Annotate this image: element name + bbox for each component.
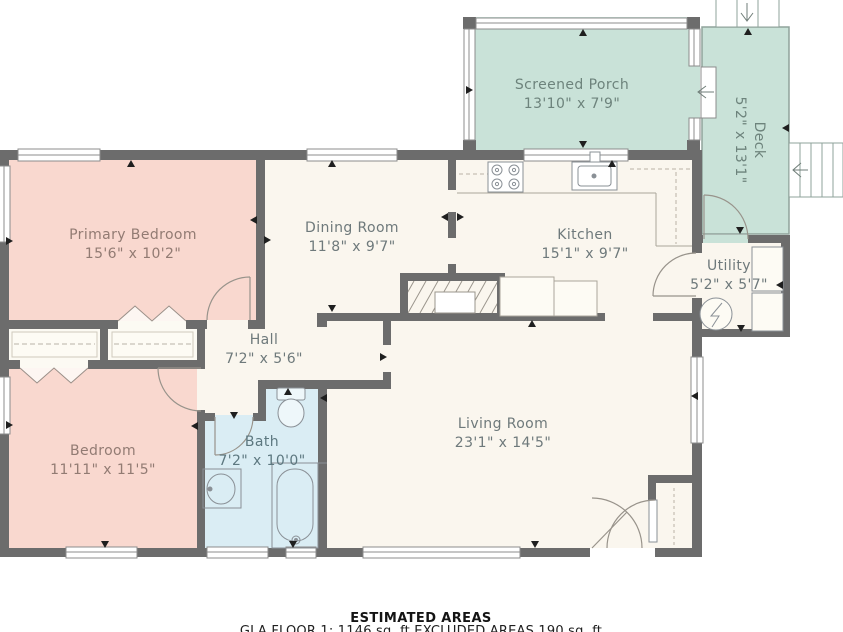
- screen-panel: [689, 118, 700, 140]
- window: [66, 547, 137, 558]
- screen-panel: [464, 29, 475, 140]
- deck-stairs-top: [716, 0, 779, 27]
- window: [207, 547, 268, 558]
- entry-closet-door: [649, 500, 657, 542]
- washer-dryer: [752, 247, 783, 331]
- deck-floor: [702, 27, 789, 234]
- floorplan: Screened Porch 13'10" x 7'9" Deck 5'2" x…: [0, 0, 843, 632]
- dryer: [752, 293, 783, 331]
- window: [307, 149, 397, 161]
- window: [0, 166, 10, 242]
- window: [18, 149, 100, 161]
- screened-porch-floor: [464, 17, 700, 152]
- utility-door-opening: [692, 253, 702, 298]
- cabinet: [554, 281, 597, 316]
- floorplan-drawing: [0, 0, 843, 632]
- kitchen-appliances: [500, 277, 597, 316]
- window: [691, 357, 703, 443]
- window: [286, 547, 316, 558]
- window: [363, 547, 520, 558]
- primary-bedroom-floor: [9, 160, 256, 320]
- stove: [488, 162, 523, 192]
- refrigerator: [500, 277, 554, 316]
- bath-floor: [205, 415, 318, 548]
- deck-door-opening: [703, 235, 748, 243]
- window: [524, 149, 628, 161]
- floor-areas: [9, 17, 789, 548]
- screen-panel: [689, 29, 700, 66]
- water-heater: [700, 298, 732, 330]
- estimated-areas-detail: GLA FLOOR 1: 1146 sq. ft EXCLUDED AREAS …: [240, 624, 602, 632]
- bedroom-floor: [9, 368, 197, 548]
- screen-panel: [476, 18, 687, 29]
- deck-stairs-side: [789, 143, 843, 197]
- entry-door-opening: [590, 548, 655, 557]
